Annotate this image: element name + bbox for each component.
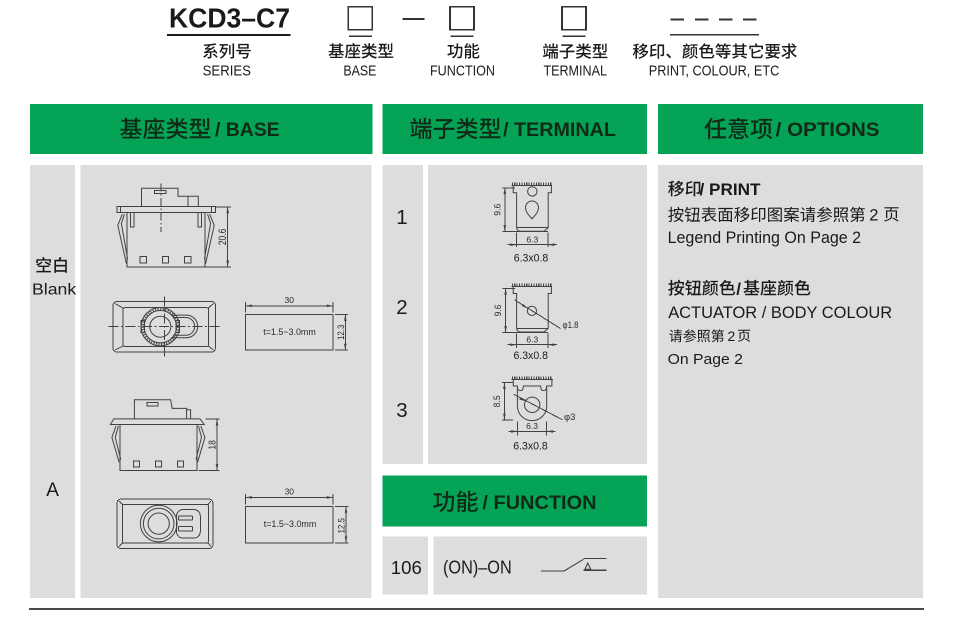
svg-text:(ON)–ON: (ON)–ON xyxy=(443,558,512,578)
svg-text:3: 3 xyxy=(396,399,407,422)
svg-text:6.3: 6.3 xyxy=(526,335,538,345)
svg-text:12.5: 12.5 xyxy=(337,518,348,534)
svg-text:BASE: BASE xyxy=(343,62,376,79)
svg-text:6.3x0.8: 6.3x0.8 xyxy=(513,350,548,362)
svg-text:/ OPTIONS: / OPTIONS xyxy=(776,119,880,141)
svg-text:SERIES: SERIES xyxy=(203,62,251,79)
svg-text:Blank: Blank xyxy=(32,282,77,299)
svg-text:t=1.5~3.0mm: t=1.5~3.0mm xyxy=(264,519,317,529)
svg-text:8.5: 8.5 xyxy=(492,395,502,407)
svg-text:/ PRINT: / PRINT xyxy=(700,180,762,199)
svg-text:φ1.8: φ1.8 xyxy=(563,320,579,331)
svg-text:9.6: 9.6 xyxy=(493,304,503,316)
svg-text:/: / xyxy=(736,279,741,298)
svg-text:2: 2 xyxy=(869,207,878,225)
svg-text:/ FUNCTION: / FUNCTION xyxy=(482,492,596,514)
svg-text:9.6: 9.6 xyxy=(492,204,502,216)
svg-text:1: 1 xyxy=(396,206,407,229)
svg-text:2: 2 xyxy=(728,328,736,344)
svg-text:FUNCTION: FUNCTION xyxy=(430,62,495,79)
svg-text:12.3: 12.3 xyxy=(336,325,347,341)
svg-text:6.3x0.8: 6.3x0.8 xyxy=(513,441,548,453)
svg-text:KCD3–C7: KCD3–C7 xyxy=(169,3,290,34)
svg-text:30: 30 xyxy=(285,487,295,497)
svg-text:ACTUATOR / BODY COLOUR: ACTUATOR / BODY COLOUR xyxy=(668,303,892,322)
svg-text:/ TERMINAL: / TERMINAL xyxy=(503,119,616,141)
svg-text:PRINT, COLOUR, ETC: PRINT, COLOUR, ETC xyxy=(649,62,780,79)
svg-text:30: 30 xyxy=(285,295,295,305)
svg-text:On Page 2: On Page 2 xyxy=(668,351,743,368)
svg-text:TERMINAL: TERMINAL xyxy=(543,62,607,79)
svg-text:6.3: 6.3 xyxy=(526,421,538,431)
svg-text:φ3: φ3 xyxy=(564,412,575,423)
svg-text:/ BASE: / BASE xyxy=(215,119,280,141)
svg-text:106: 106 xyxy=(391,557,422,578)
svg-text:Legend Printing On Page 2: Legend Printing On Page 2 xyxy=(668,228,862,247)
svg-text:6.3x0.8: 6.3x0.8 xyxy=(514,253,549,265)
svg-text:t=1.5~3.0mm: t=1.5~3.0mm xyxy=(263,327,316,337)
svg-text:20.6: 20.6 xyxy=(217,229,229,246)
svg-text:A: A xyxy=(46,480,59,501)
svg-text:2: 2 xyxy=(396,296,407,319)
svg-text:18: 18 xyxy=(208,440,219,450)
svg-text:6.3: 6.3 xyxy=(526,235,538,245)
